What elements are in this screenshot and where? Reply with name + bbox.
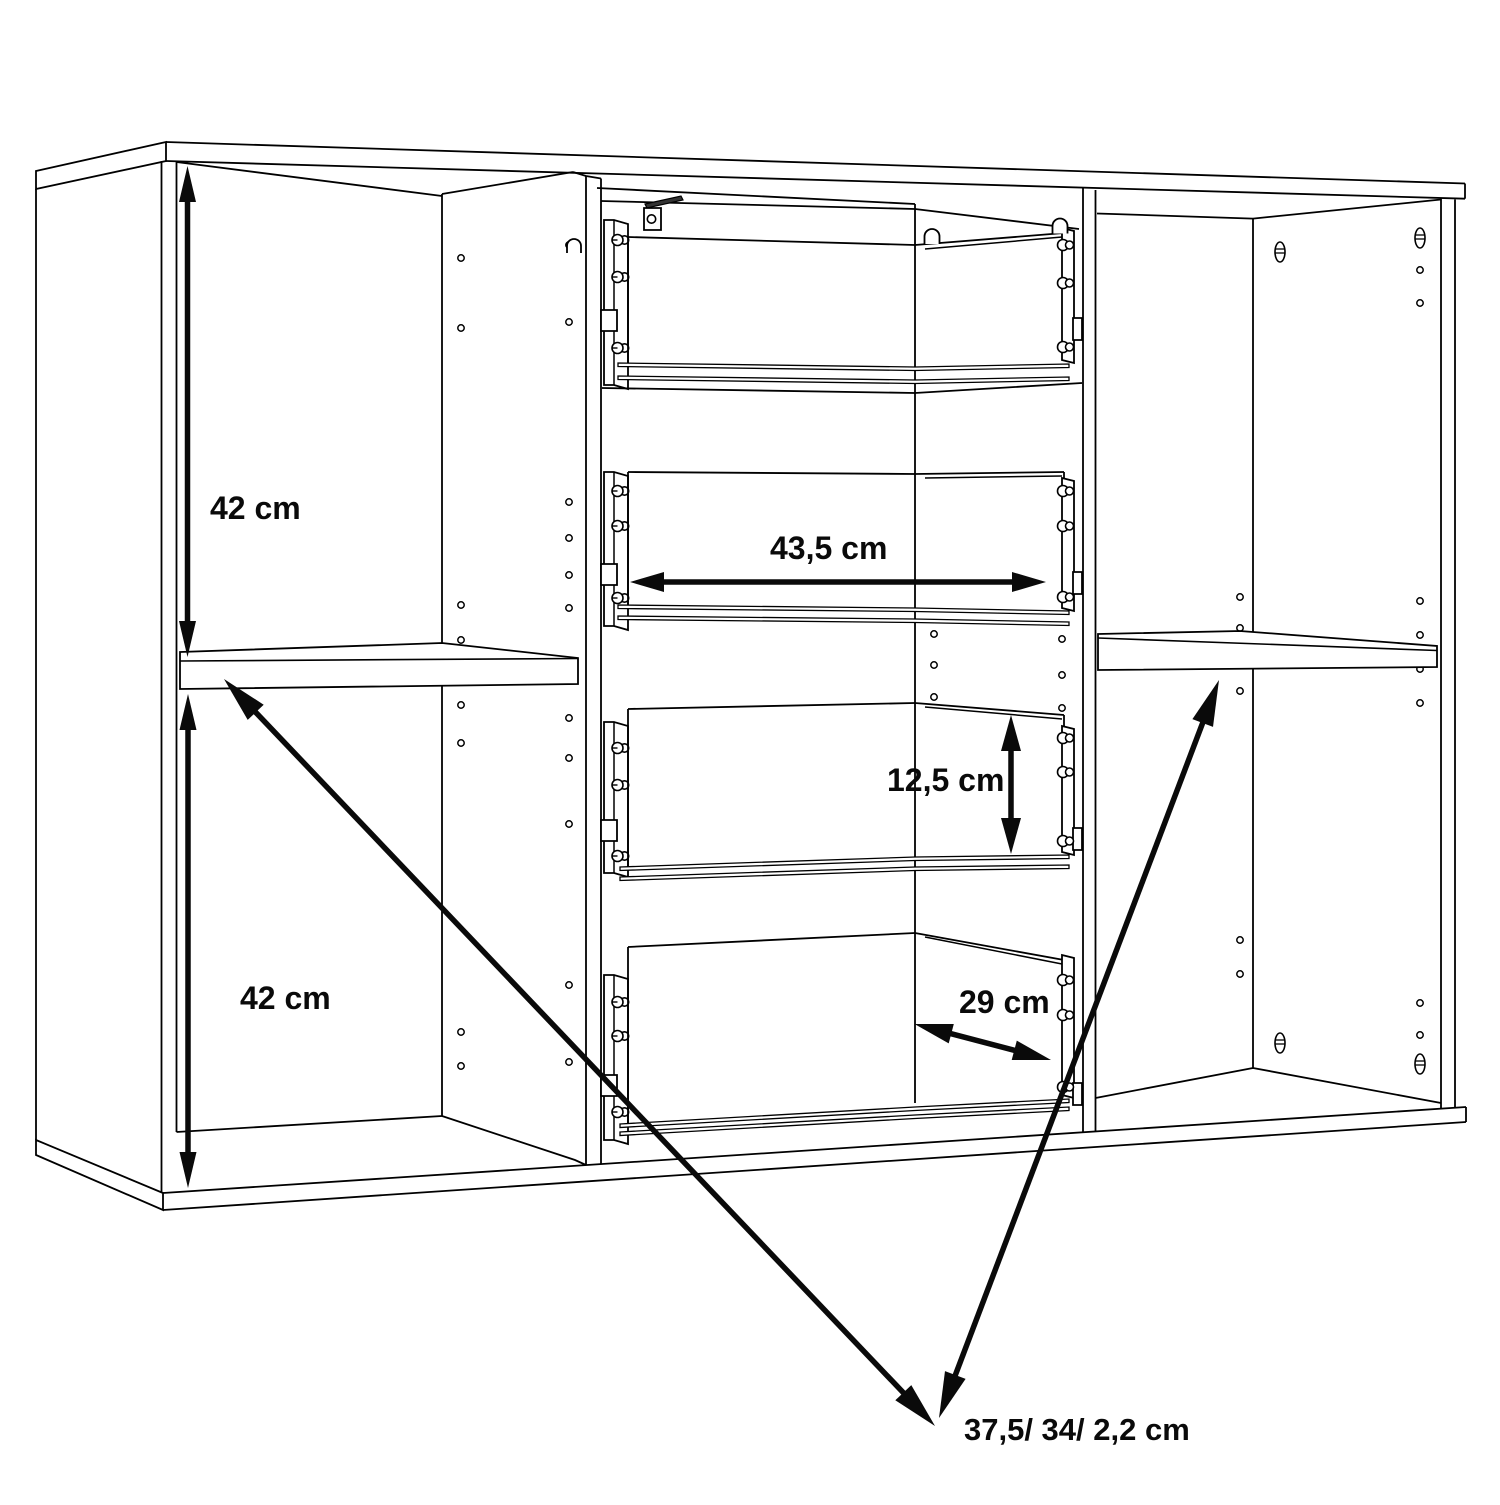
svg-text:12,5 cm: 12,5 cm: [887, 762, 1004, 798]
svg-text:37,5/ 34/ 2,2 cm: 37,5/ 34/ 2,2 cm: [964, 1412, 1190, 1447]
svg-text:42 cm: 42 cm: [210, 490, 301, 526]
svg-text:43,5 cm: 43,5 cm: [770, 530, 887, 566]
svg-text:42 cm: 42 cm: [240, 980, 331, 1016]
svg-text:29 cm: 29 cm: [959, 984, 1050, 1020]
